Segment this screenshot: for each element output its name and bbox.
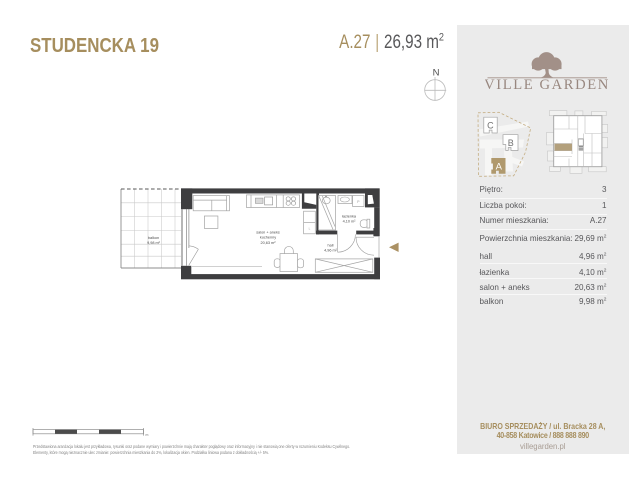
svg-text:VILLE GARDEN: VILLE GARDEN — [485, 77, 609, 91]
svg-text:salon + aneks: salon + aneks — [256, 231, 280, 235]
svg-text:A: A — [496, 161, 503, 172]
svg-text:łazienka: łazienka — [342, 214, 357, 218]
svg-text:m: m — [146, 433, 149, 437]
svg-text:hall: hall — [328, 243, 334, 247]
svg-text:4,96 m²: 4,96 m² — [324, 249, 338, 253]
svg-text:balkon: balkon — [148, 236, 159, 240]
svg-text:N: N — [433, 68, 440, 79]
svg-text:C: C — [487, 120, 494, 130]
svg-text:9,98 m²: 9,98 m² — [147, 241, 161, 245]
svg-text:20,63 m²: 20,63 m² — [261, 241, 277, 245]
svg-text:kuchenny: kuchenny — [260, 236, 276, 240]
svg-text:B: B — [508, 138, 514, 148]
svg-text:4,10 m²: 4,10 m² — [343, 220, 357, 224]
